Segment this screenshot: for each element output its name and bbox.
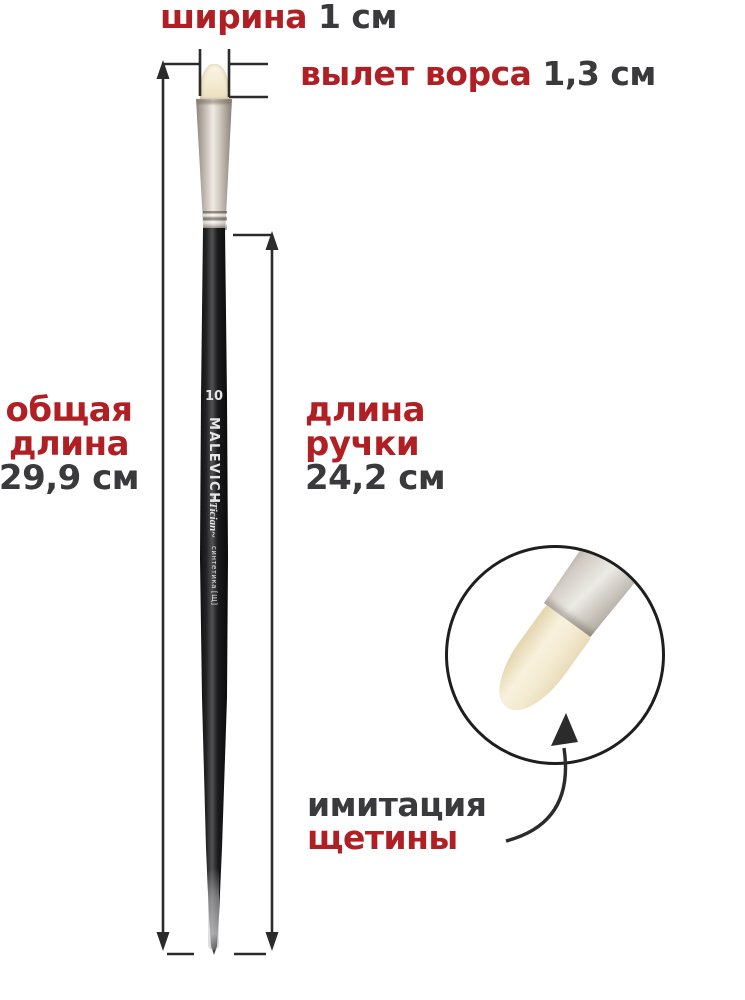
callout-arrow-shaft [506,748,566,841]
dimension-lines-overlay [0,0,745,1000]
handle-length-arrowhead-down-icon [266,932,279,951]
callout-arrowhead-icon [551,713,578,746]
total-length-arrowhead-down-icon [157,932,170,951]
brush-dimensions-infographic: ширина 1 см вылет ворса 1,3 см общая дли… [0,0,745,1000]
